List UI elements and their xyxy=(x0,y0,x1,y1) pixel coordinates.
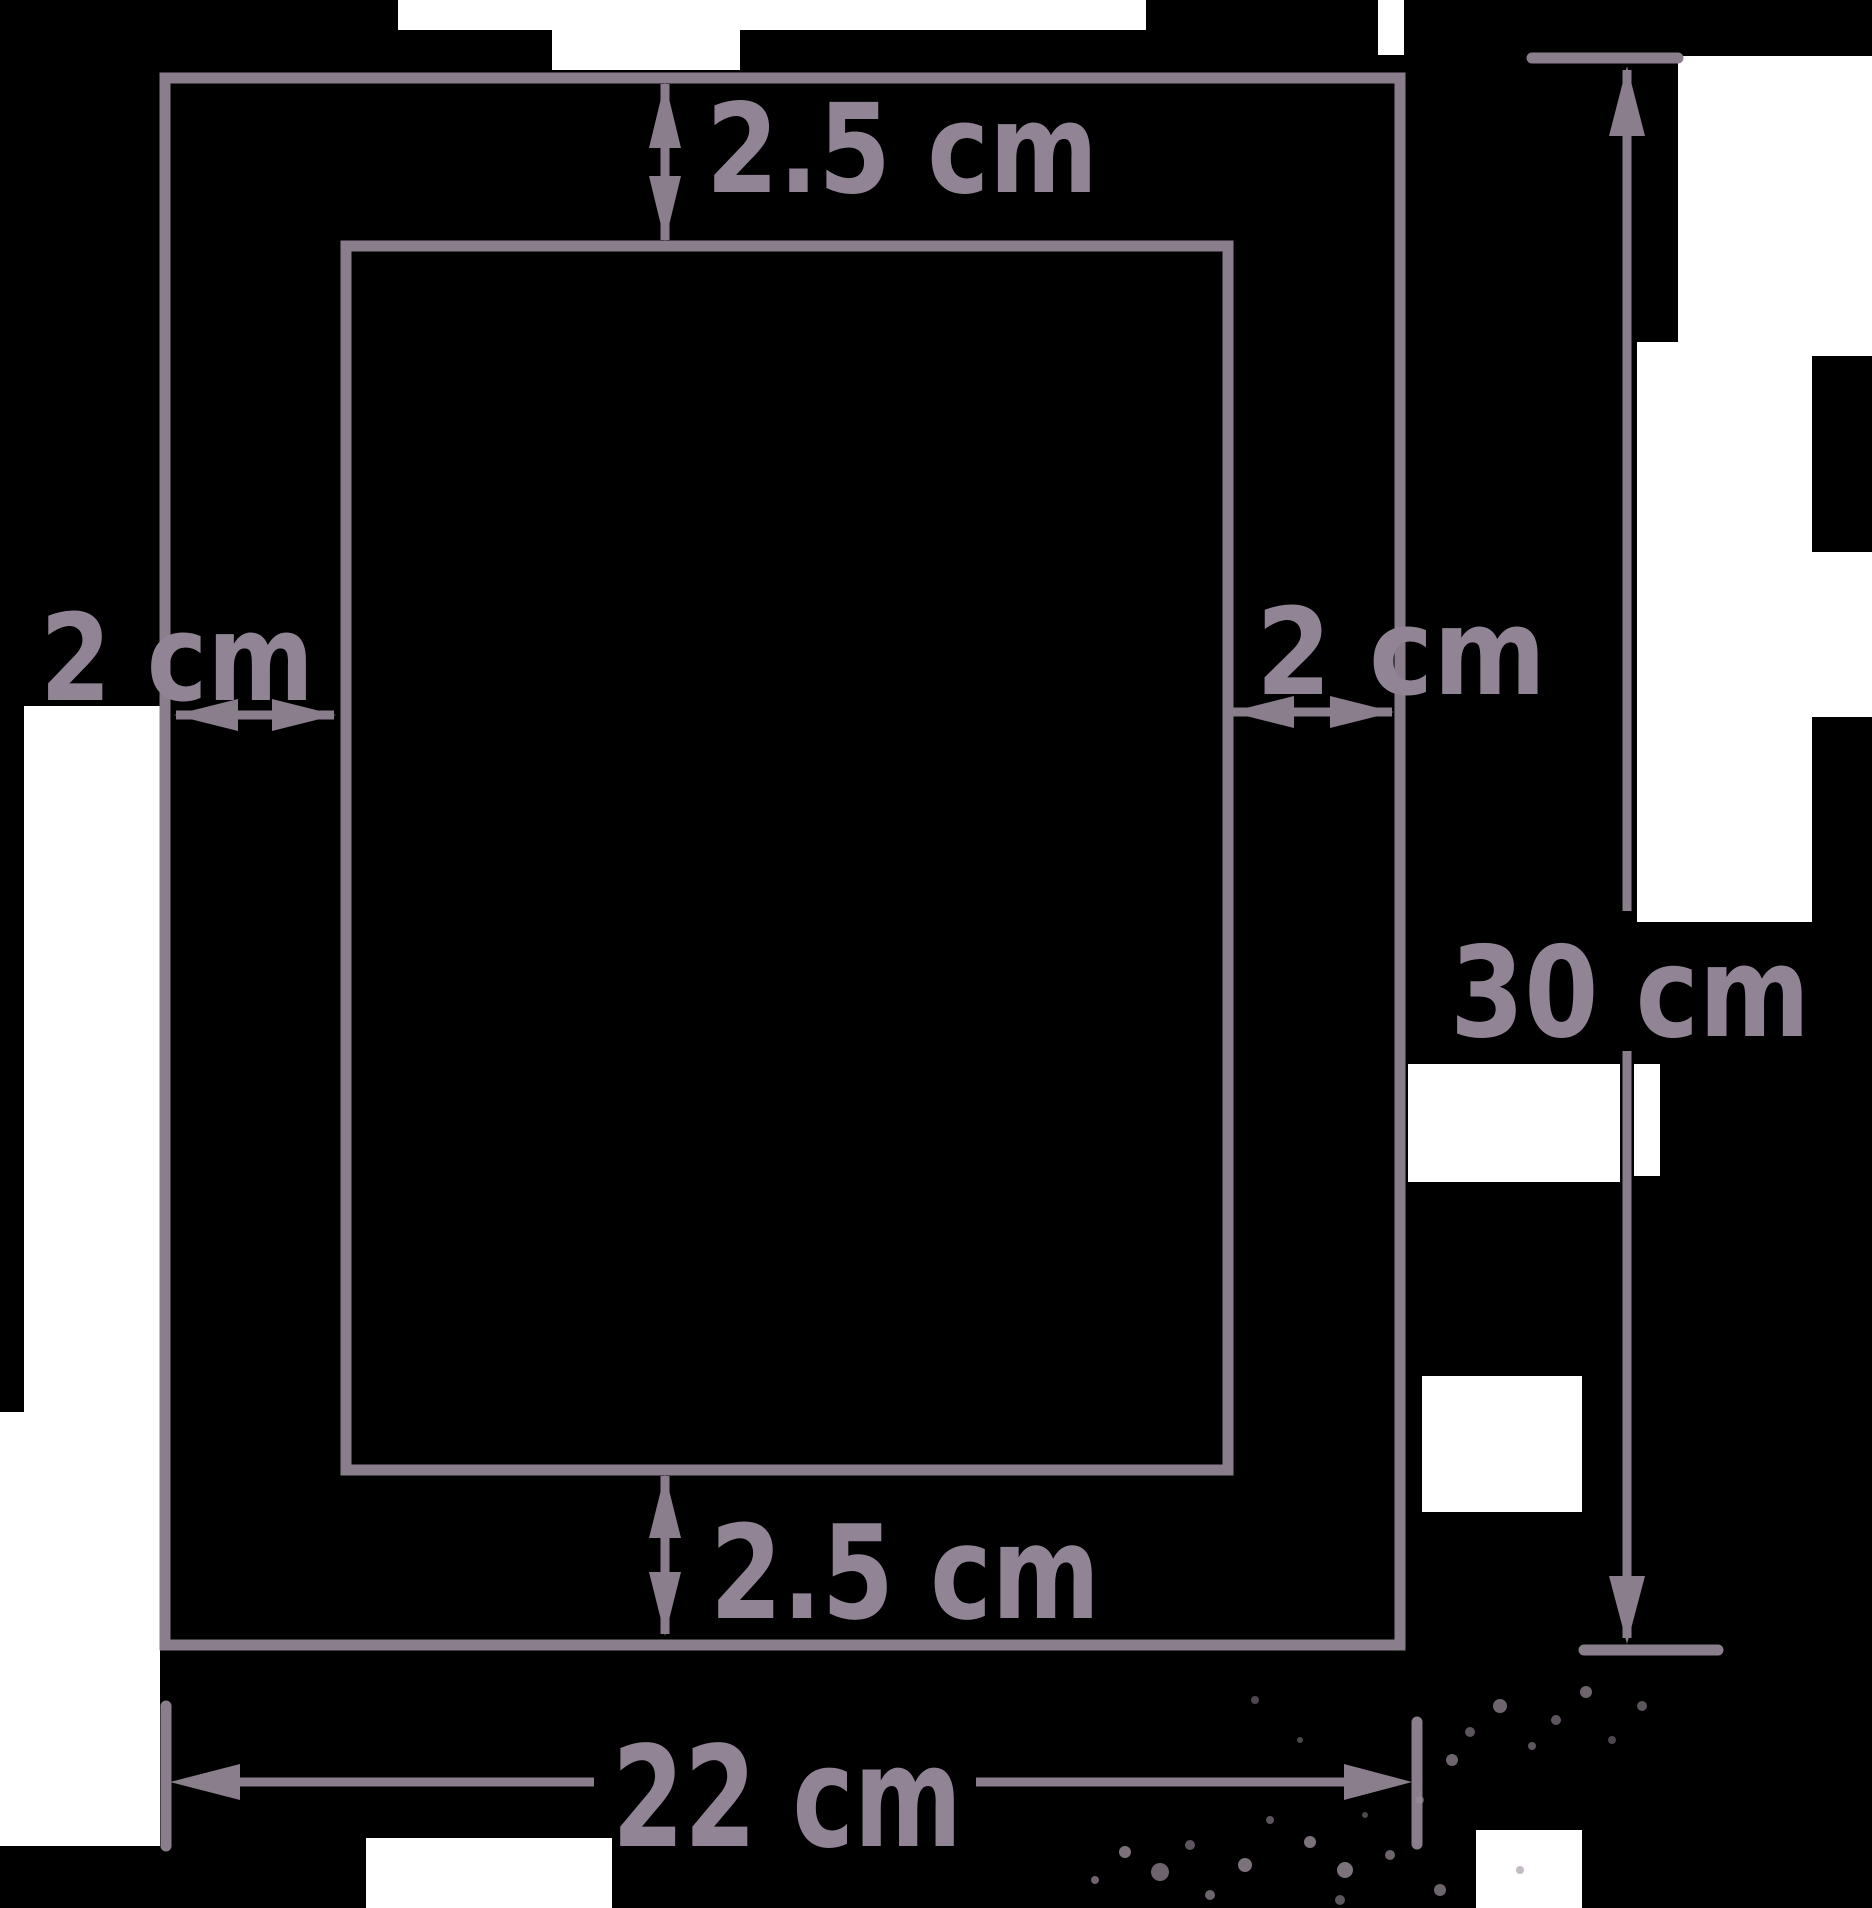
label-total-width: 22 cm xyxy=(612,1717,962,1880)
label-bottom-margin: 2.5 cm xyxy=(710,1497,1100,1649)
white-patch xyxy=(552,28,740,70)
white-patch xyxy=(366,1838,612,1908)
white-patch xyxy=(1637,342,1812,922)
white-patch xyxy=(24,706,164,1412)
label-right-margin: 2 cm xyxy=(1256,584,1546,723)
white-patch xyxy=(398,0,1146,30)
dimension-left-margin: 2 cm xyxy=(40,590,336,731)
white-patch xyxy=(1634,1064,1660,1176)
label-top-margin: 2.5 cm xyxy=(706,78,1098,222)
geometry-diagram: 2.5 cm 2.5 cm 2 cm 2 cm xyxy=(0,0,1872,1908)
dimension-bottom-margin: 2.5 cm xyxy=(649,1474,1100,1649)
white-patch xyxy=(1422,1376,1582,1512)
dimension-top-margin: 2.5 cm xyxy=(649,78,1098,242)
white-patch xyxy=(1378,0,1404,55)
white-patch xyxy=(1408,1064,1620,1182)
scanned-diagram-page: 2.5 cm 2.5 cm 2 cm 2 cm xyxy=(0,0,1872,1908)
dimension-right-margin: 2 cm xyxy=(1230,584,1546,728)
white-patch xyxy=(0,1412,160,1846)
label-left-margin: 2 cm xyxy=(40,590,314,729)
label-total-height: 30 cm xyxy=(1450,919,1810,1066)
white-patch xyxy=(1812,552,1872,717)
white-patch xyxy=(1678,56,1872,356)
white-patch xyxy=(1476,1830,1582,1908)
